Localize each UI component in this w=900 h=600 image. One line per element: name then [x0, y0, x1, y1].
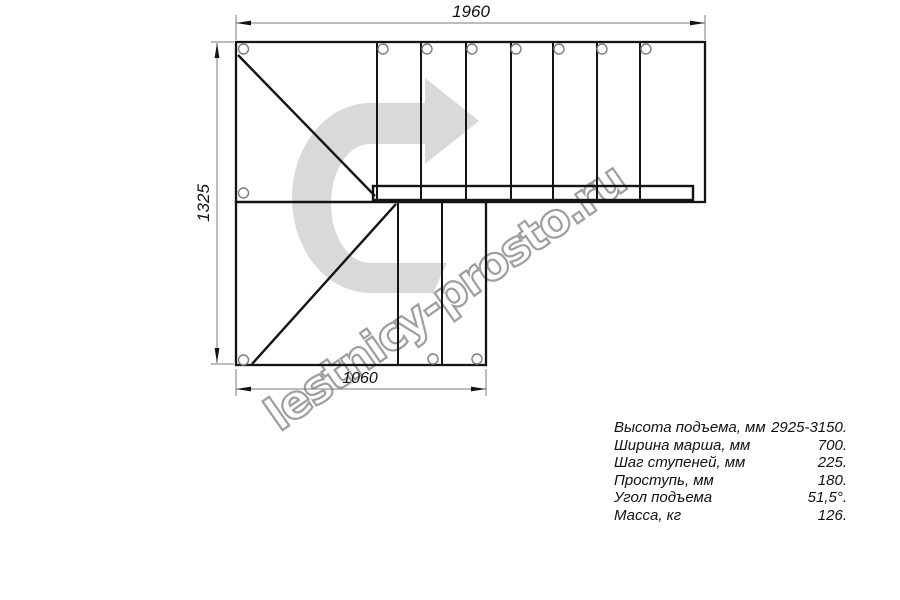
mounting-hole — [641, 44, 651, 54]
spec-label: Ширина марша, мм — [614, 437, 750, 455]
mounting-hole — [472, 354, 482, 364]
dim-arrow-icon — [236, 21, 251, 26]
mounting-hole — [239, 355, 249, 365]
spec-label: Высота подъема, мм — [614, 419, 766, 437]
spec-row: Ширина марша, мм 700. — [614, 437, 847, 455]
spec-value: 126. — [818, 507, 847, 525]
spec-table: Высота подъема, мм 2925-3150. Ширина мар… — [614, 419, 847, 524]
mounting-hole — [428, 354, 438, 364]
turn-arrow-body — [292, 103, 447, 293]
spec-row: Проступь, мм 180. — [614, 472, 847, 490]
spec-label: Масса, кг — [614, 507, 681, 525]
dimension-left: 1325 — [194, 42, 234, 364]
spec-row: Шаг ступеней, мм 225. — [614, 454, 847, 472]
spec-value: 700. — [818, 437, 847, 455]
dimension-bottom-value: 1060 — [342, 370, 378, 387]
mounting-hole — [511, 44, 521, 54]
mounting-hole — [597, 44, 607, 54]
dim-arrow-icon — [690, 21, 705, 26]
mounting-hole — [422, 44, 432, 54]
spec-label: Проступь, мм — [614, 472, 714, 490]
dim-arrow-icon — [471, 387, 486, 392]
mounting-hole — [554, 44, 564, 54]
spec-label: Угол подъема — [614, 489, 712, 507]
spec-value: 2925-3150. — [771, 419, 847, 437]
dimension-top-value: 1960 — [452, 2, 490, 21]
dimension-left-value: 1325 — [194, 184, 213, 222]
spec-label: Шаг ступеней, мм — [614, 454, 745, 472]
staircase-drawing-page: lestnicy-prosto.ru — [0, 0, 900, 600]
spec-value: 180. — [818, 472, 847, 490]
mounting-hole — [467, 44, 477, 54]
dimension-top: 1960 — [236, 2, 705, 40]
dim-arrow-icon — [215, 348, 220, 363]
turn-arrow-head-icon — [425, 78, 479, 164]
spec-row: Масса, кг 126. — [614, 507, 847, 525]
mounting-hole — [239, 188, 249, 198]
dim-arrow-icon — [236, 387, 251, 392]
mounting-hole — [239, 44, 249, 54]
mounting-hole — [378, 44, 388, 54]
spec-value: 51,5°. — [808, 489, 847, 507]
spec-row: Угол подъема 51,5°. — [614, 489, 847, 507]
spec-row: Высота подъема, мм 2925-3150. — [614, 419, 847, 437]
spec-value: 225. — [818, 454, 847, 472]
dim-arrow-icon — [215, 43, 220, 58]
